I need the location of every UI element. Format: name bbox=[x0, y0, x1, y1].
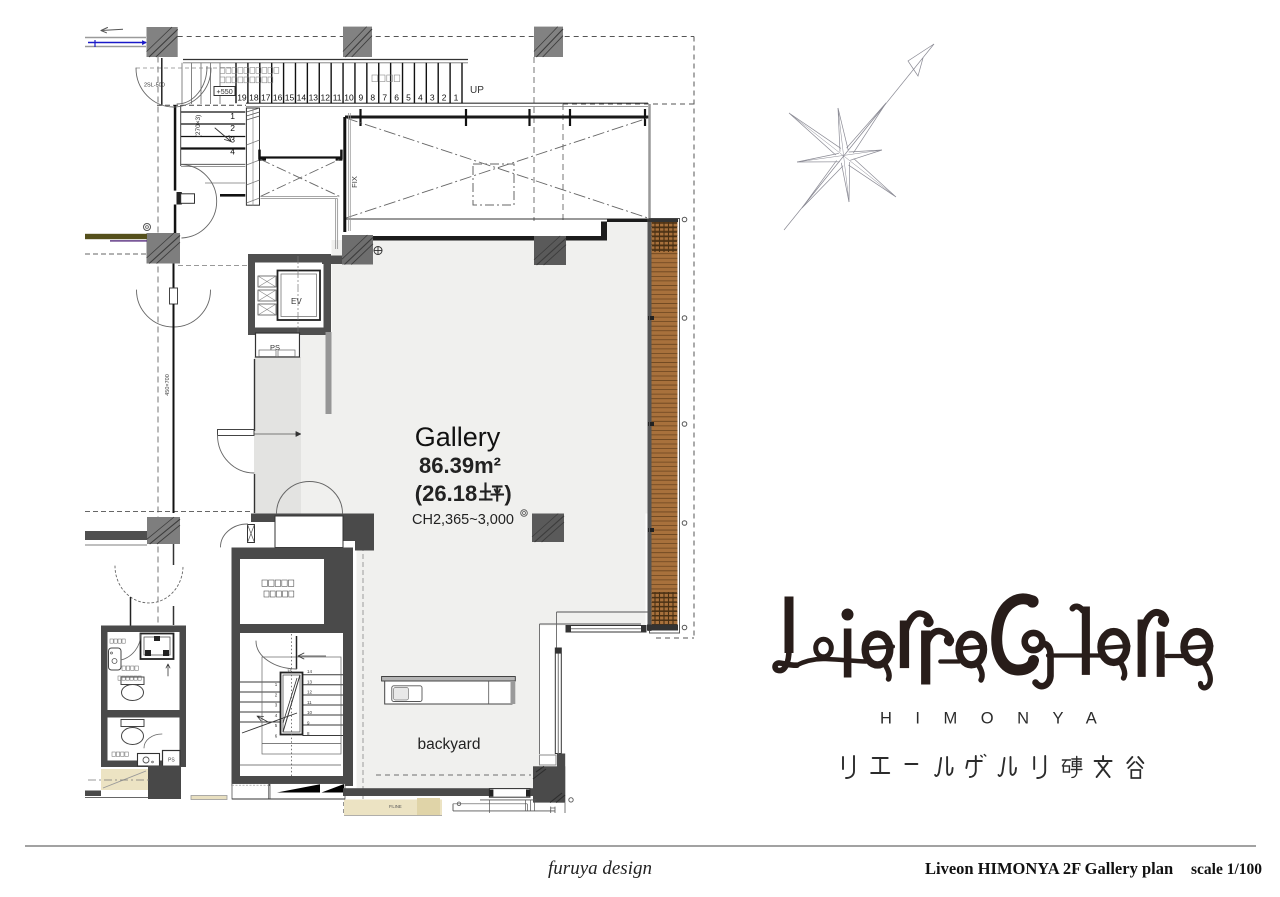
svg-text:11: 11 bbox=[307, 700, 312, 705]
svg-text:13: 13 bbox=[307, 679, 313, 684]
svg-text:14: 14 bbox=[297, 93, 307, 103]
svg-text:12: 12 bbox=[320, 93, 330, 103]
svg-text:11: 11 bbox=[333, 93, 342, 103]
svg-text:Gallery: Gallery bbox=[415, 422, 501, 452]
svg-text:8: 8 bbox=[370, 93, 375, 103]
svg-text:4: 4 bbox=[230, 146, 235, 156]
svg-text:PS: PS bbox=[168, 758, 175, 764]
svg-text:86.39m²: 86.39m² bbox=[419, 453, 501, 478]
svg-text:UP: UP bbox=[470, 85, 484, 96]
svg-text:4: 4 bbox=[418, 93, 423, 103]
svg-text:450×700: 450×700 bbox=[165, 374, 171, 396]
svg-text:2: 2 bbox=[230, 123, 235, 133]
svg-text:1: 1 bbox=[454, 93, 459, 103]
svg-text:EV: EV bbox=[291, 297, 302, 306]
svg-text:16: 16 bbox=[273, 93, 283, 103]
svg-text:19: 19 bbox=[237, 93, 247, 103]
svg-text:(270×3): (270×3) bbox=[195, 115, 202, 138]
svg-text:CH2,365~3,000: CH2,365~3,000 bbox=[412, 512, 514, 528]
svg-text:3: 3 bbox=[430, 93, 435, 103]
svg-text:12: 12 bbox=[307, 690, 313, 695]
svg-text:10: 10 bbox=[344, 93, 354, 103]
svg-text:Liveon HIMONYA 2F Gallery plan: Liveon HIMONYA 2F Gallery plan bbox=[925, 859, 1173, 878]
svg-text:9: 9 bbox=[359, 93, 364, 103]
svg-text:2: 2 bbox=[442, 93, 447, 103]
svg-text:furuya design: furuya design bbox=[548, 858, 652, 879]
svg-text:scale 1/100: scale 1/100 bbox=[1191, 861, 1262, 878]
svg-text:(26.18: (26.18 bbox=[415, 481, 477, 506]
svg-text:FIX: FIX bbox=[350, 176, 359, 188]
svg-text:17: 17 bbox=[261, 93, 271, 103]
svg-text:backyard: backyard bbox=[418, 736, 481, 753]
svg-text:18: 18 bbox=[249, 93, 259, 103]
svg-text:6: 6 bbox=[394, 93, 399, 103]
svg-text:15: 15 bbox=[285, 93, 295, 103]
svg-text:P.LINE: P.LINE bbox=[389, 804, 402, 809]
svg-text:7: 7 bbox=[382, 93, 387, 103]
svg-text:13: 13 bbox=[309, 93, 319, 103]
svg-text:HIMONYA: HIMONYA bbox=[880, 710, 1120, 728]
svg-text:): ) bbox=[504, 481, 511, 506]
svg-text:14: 14 bbox=[307, 669, 313, 674]
svg-text:1: 1 bbox=[230, 111, 235, 121]
svg-text:+550: +550 bbox=[217, 87, 233, 96]
svg-text:3: 3 bbox=[230, 135, 235, 145]
svg-text:10: 10 bbox=[307, 710, 313, 715]
svg-text:5: 5 bbox=[406, 93, 411, 103]
